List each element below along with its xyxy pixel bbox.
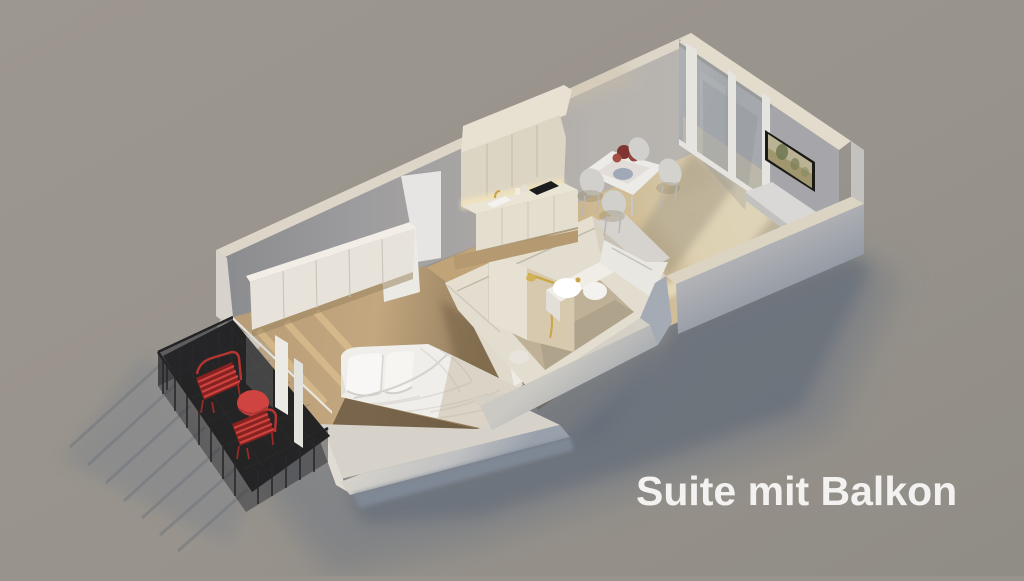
svg-text:Suite mit Balkon: Suite mit Balkon (636, 468, 957, 514)
